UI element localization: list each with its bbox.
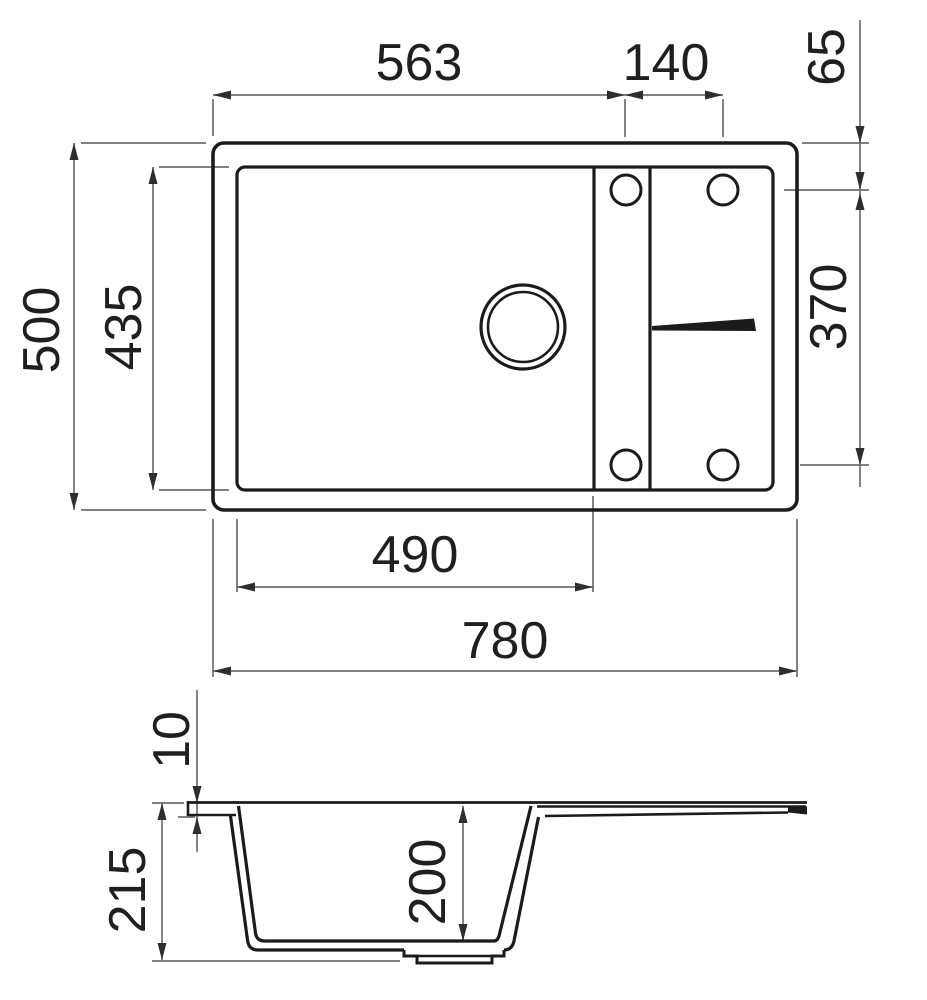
top-view — [213, 143, 797, 510]
arrow — [193, 786, 202, 803]
bowl-outer-wall-right — [504, 817, 539, 950]
tap-hole — [611, 450, 641, 480]
arrow — [856, 126, 865, 143]
arrow — [856, 448, 865, 465]
drainboard-groove — [652, 319, 756, 332]
tap-hole — [708, 175, 738, 205]
side-view — [187, 801, 807, 963]
dim-label-10: 10 — [146, 711, 198, 769]
arrow — [459, 924, 468, 941]
dim-label-435: 435 — [98, 284, 150, 371]
arrow — [149, 473, 158, 490]
arrow — [149, 167, 158, 184]
drainboard-right-edge — [788, 807, 807, 815]
arrow — [213, 667, 231, 676]
drainboard-underside — [545, 813, 788, 817]
dim-label-215: 215 — [102, 847, 154, 934]
sink-technical-drawing: 563 140 65 500 435 370 490 780 10 215 20… — [0, 0, 927, 1000]
arrow — [856, 172, 865, 190]
arrow — [193, 817, 202, 834]
arrow — [70, 493, 79, 510]
drain-inner-circle — [488, 292, 558, 362]
dim-label-490: 490 — [372, 529, 459, 581]
dim-label-500: 500 — [16, 287, 68, 374]
arrow — [459, 806, 468, 823]
arrow — [213, 91, 231, 100]
dim-label-140: 140 — [623, 37, 710, 89]
drain-outer-circle — [481, 285, 565, 369]
dim-label-563: 563 — [376, 37, 463, 89]
dim-label-200: 200 — [402, 839, 454, 926]
arrow — [237, 583, 255, 592]
tap-hole — [611, 175, 641, 205]
dim-label-65: 65 — [801, 28, 853, 86]
arrow — [575, 583, 593, 592]
dim-label-780: 780 — [462, 615, 549, 667]
bowl-inner-wall — [239, 806, 532, 941]
arrow — [158, 943, 167, 960]
tap-hole — [708, 450, 738, 480]
dimension-arrows — [70, 91, 865, 961]
dim-label-370: 370 — [803, 264, 855, 351]
arrow — [158, 803, 167, 820]
arrow — [856, 193, 865, 210]
arrow — [70, 143, 79, 160]
arrow — [779, 667, 797, 676]
